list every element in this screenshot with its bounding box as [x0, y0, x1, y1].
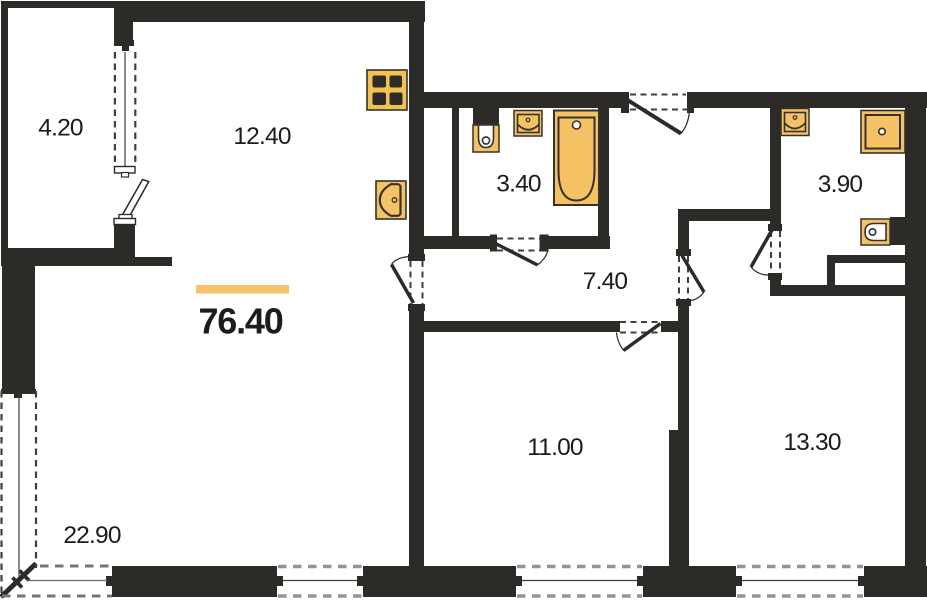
svg-text:76.40: 76.40	[198, 301, 282, 342]
svg-text:12.40: 12.40	[233, 123, 290, 150]
svg-text:3.90: 3.90	[818, 171, 863, 198]
svg-text:11.00: 11.00	[527, 434, 583, 461]
svg-text:22.90: 22.90	[63, 522, 120, 549]
svg-text:7.40: 7.40	[583, 268, 628, 295]
svg-text:13.30: 13.30	[783, 429, 840, 456]
svg-text:3.40: 3.40	[496, 171, 541, 198]
svg-text:4.20: 4.20	[38, 115, 83, 142]
